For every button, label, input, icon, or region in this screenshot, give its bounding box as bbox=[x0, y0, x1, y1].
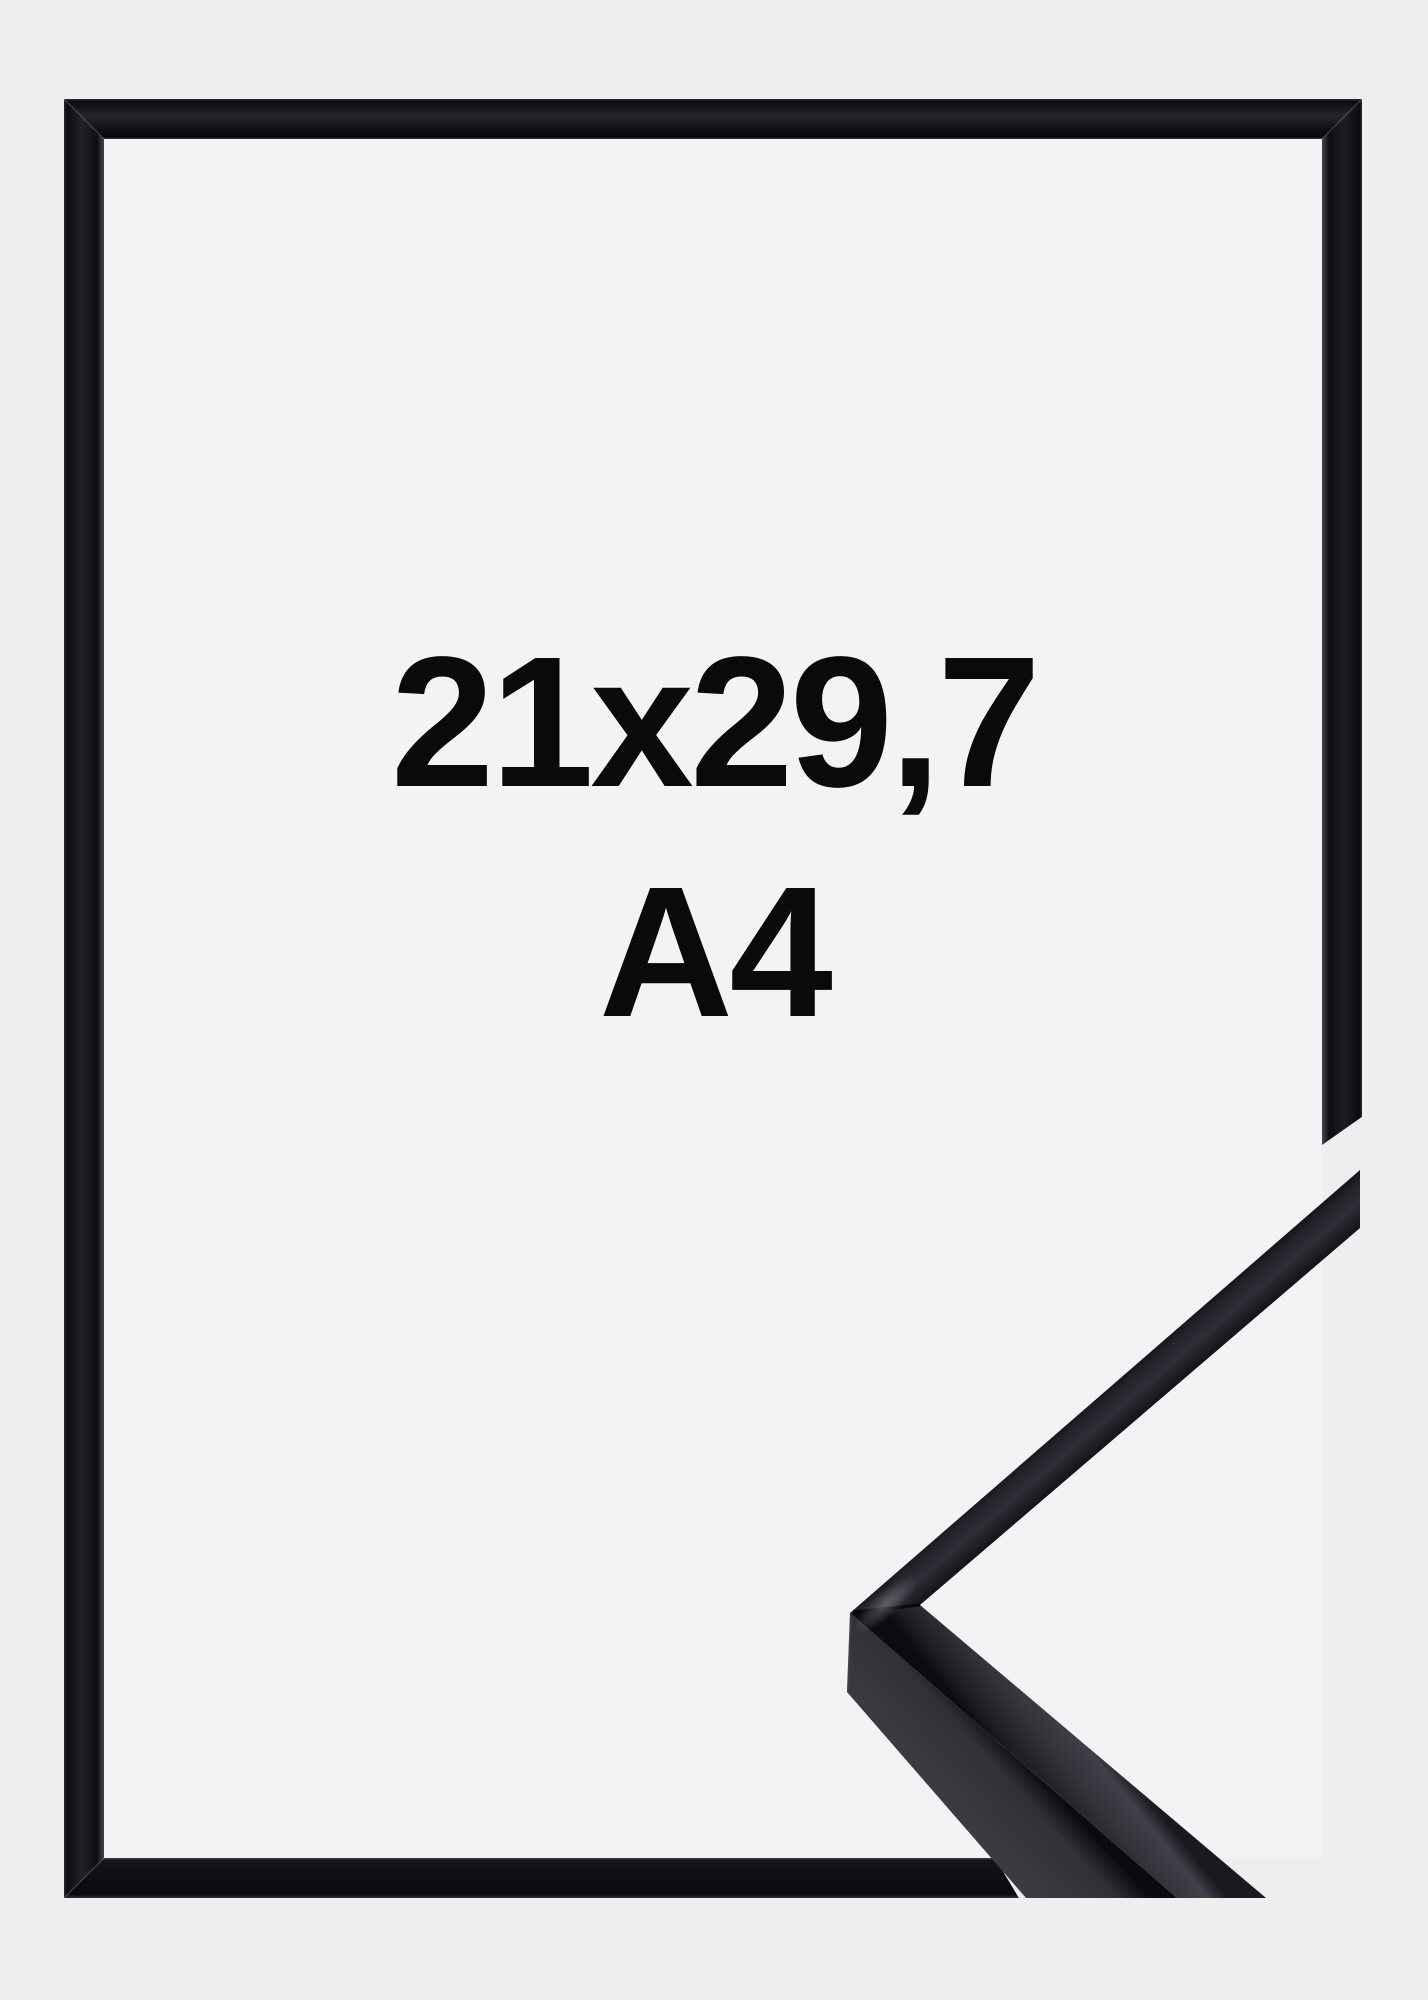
size-label-paper-format: A4 bbox=[0, 860, 1428, 1046]
frame-top-bar bbox=[64, 99, 1362, 139]
size-label-centimeters: 21x29,7 bbox=[0, 630, 1428, 816]
frame-product-image: 21x29,7 A4 bbox=[0, 0, 1428, 2000]
